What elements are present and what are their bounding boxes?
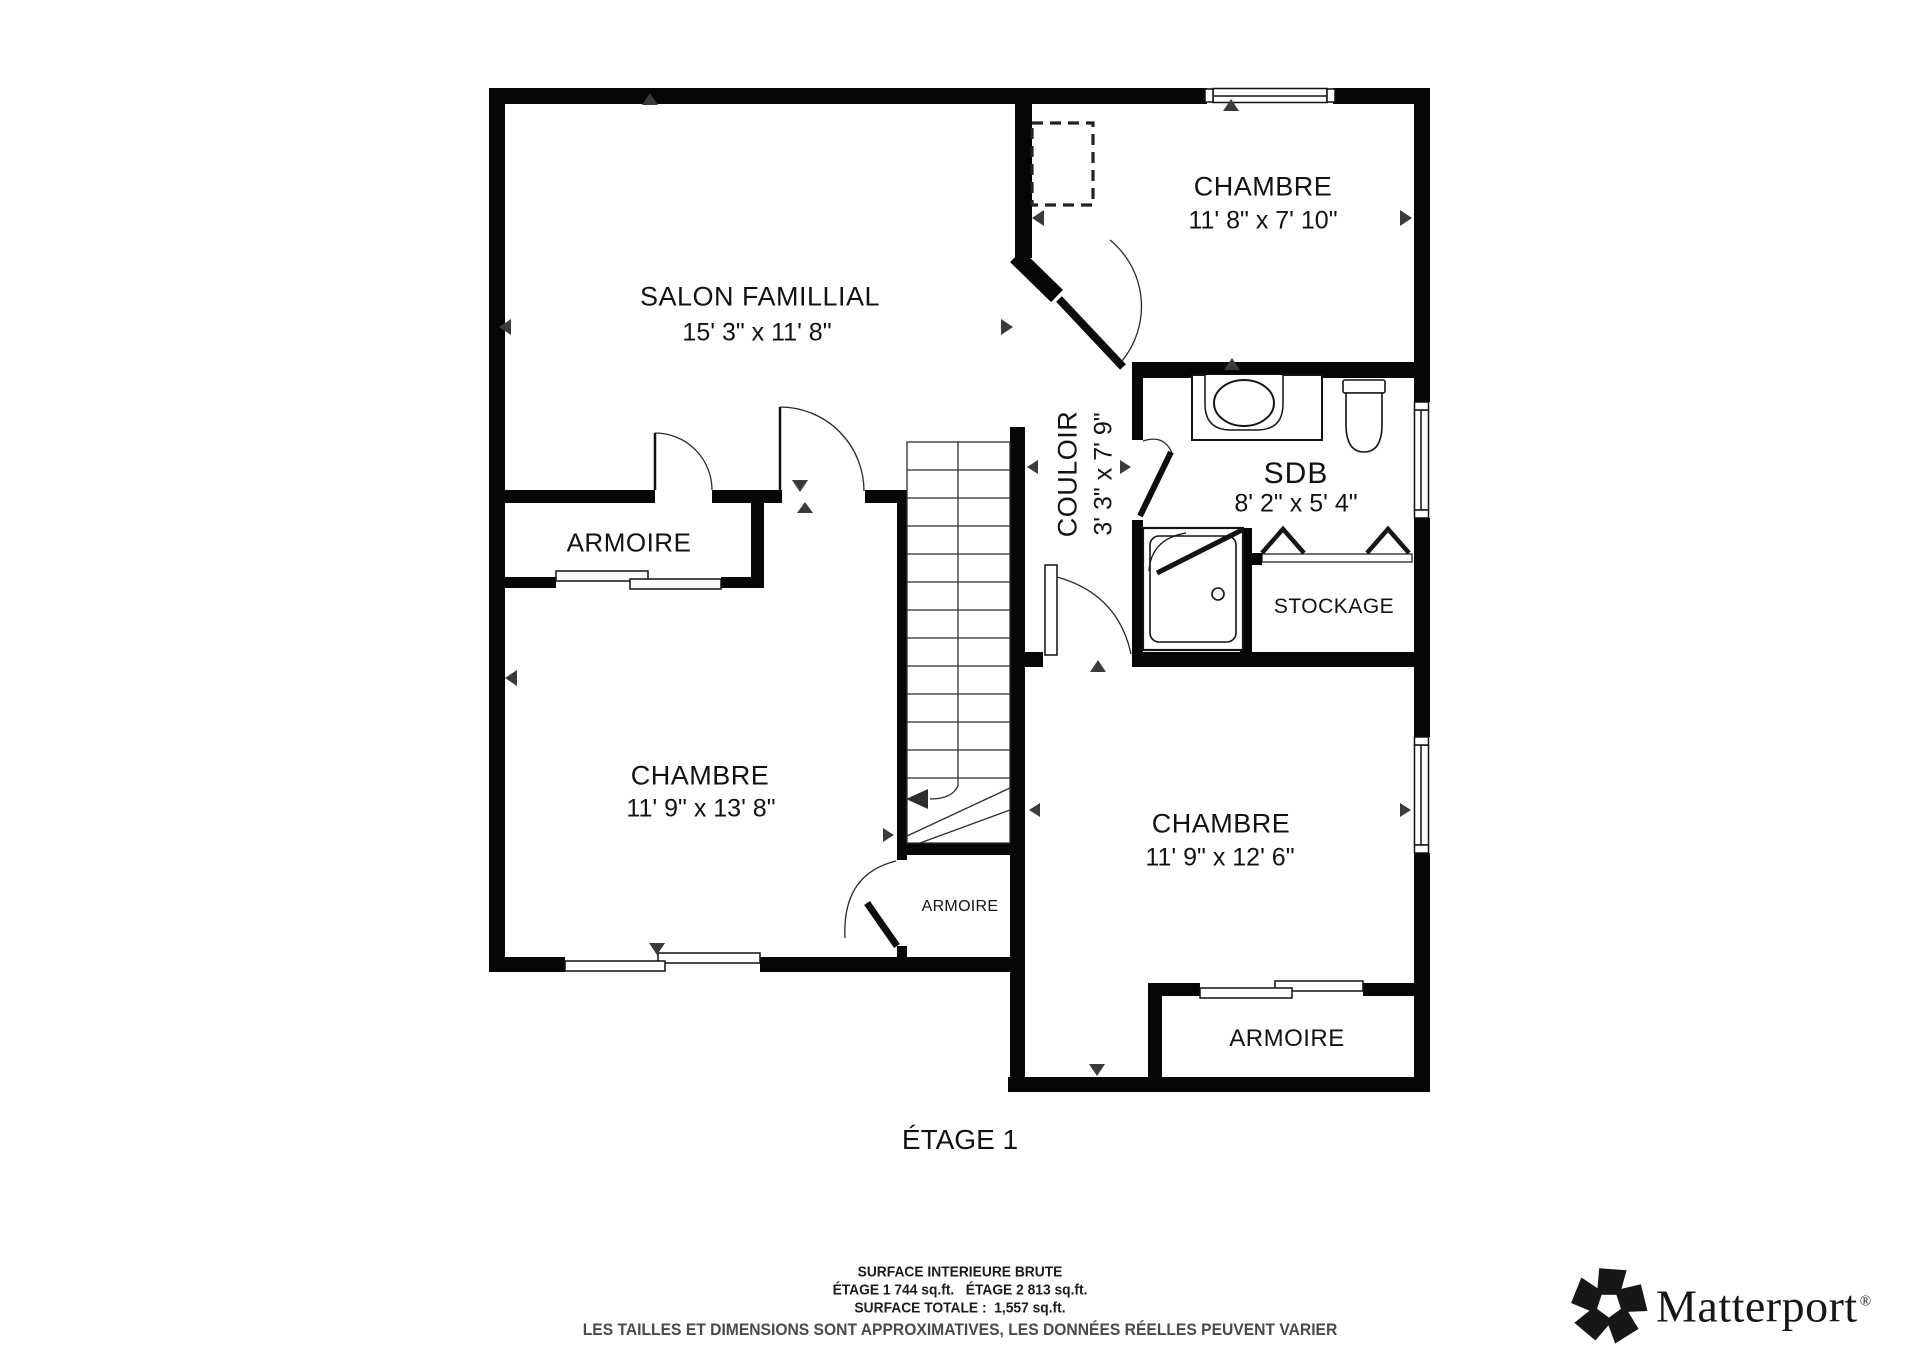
room-label-sdb: SDB [1264,457,1329,491]
matterport-wordmark: Matterport® [1656,1280,1872,1333]
room-dims-chambre-top: 11' 8" x 7' 10" [1188,207,1337,236]
room-label-stockage: STOCKAGE [1274,595,1394,619]
matterport-brand-text: Matterport [1656,1281,1858,1332]
footer-surface-brute: SURFACE INTERIEURE BRUTE [858,1264,1063,1281]
room-label-armoire-left: ARMOIRE [567,528,692,559]
room-dims-sdb: 8' 2" x 5' 4" [1234,490,1357,519]
floor-title: ÉTAGE 1 [902,1124,1018,1156]
shower-drain-icon [1212,588,1224,600]
staircase [906,442,1010,843]
sink-bowl-icon [1214,380,1274,426]
room-label-armoire-center: ARMOIRE [922,898,999,916]
room-dims-chambre-bottom: 11' 9" x 12' 6" [1145,844,1294,873]
registered-mark: ® [1860,1293,1872,1309]
room-dims-salon: 15' 3" x 11' 8" [682,319,831,348]
footer-etage-areas: ÉTAGE 1 744 sq.ft. ÉTAGE 2 813 sq.ft. [833,1282,1088,1299]
room-label-chambre-top: CHAMBRE [1194,172,1333,203]
room-dims-couloir: 3' 3" x 7' 9" [1090,412,1119,535]
footer-surface-totale: SURFACE TOTALE : 1,557 sq.ft. [854,1300,1065,1317]
matterport-logo-icon [1557,1257,1663,1357]
room-label-chambre-bottom: CHAMBRE [1152,809,1291,840]
room-label-armoire-bottom: ARMOIRE [1229,1025,1345,1053]
room-label-salon: SALON FAMILLIAL [640,282,880,313]
toilet-tank-icon [1343,380,1385,393]
room-label-couloir: COULOIR [1053,411,1084,538]
dashed-feature-box [1032,123,1093,205]
room-dims-chambre-left: 11' 9" x 13' 8" [626,795,775,824]
floorplan-page: SALON FAMILLIAL 15' 3" x 11' 8" CHAMBRE … [0,0,1920,1357]
room-label-chambre-left: CHAMBRE [631,761,770,792]
footer-disclaimer: LES TAILLES ET DIMENSIONS SONT APPROXIMA… [583,1320,1338,1340]
toilet-bowl-icon [1346,393,1382,452]
